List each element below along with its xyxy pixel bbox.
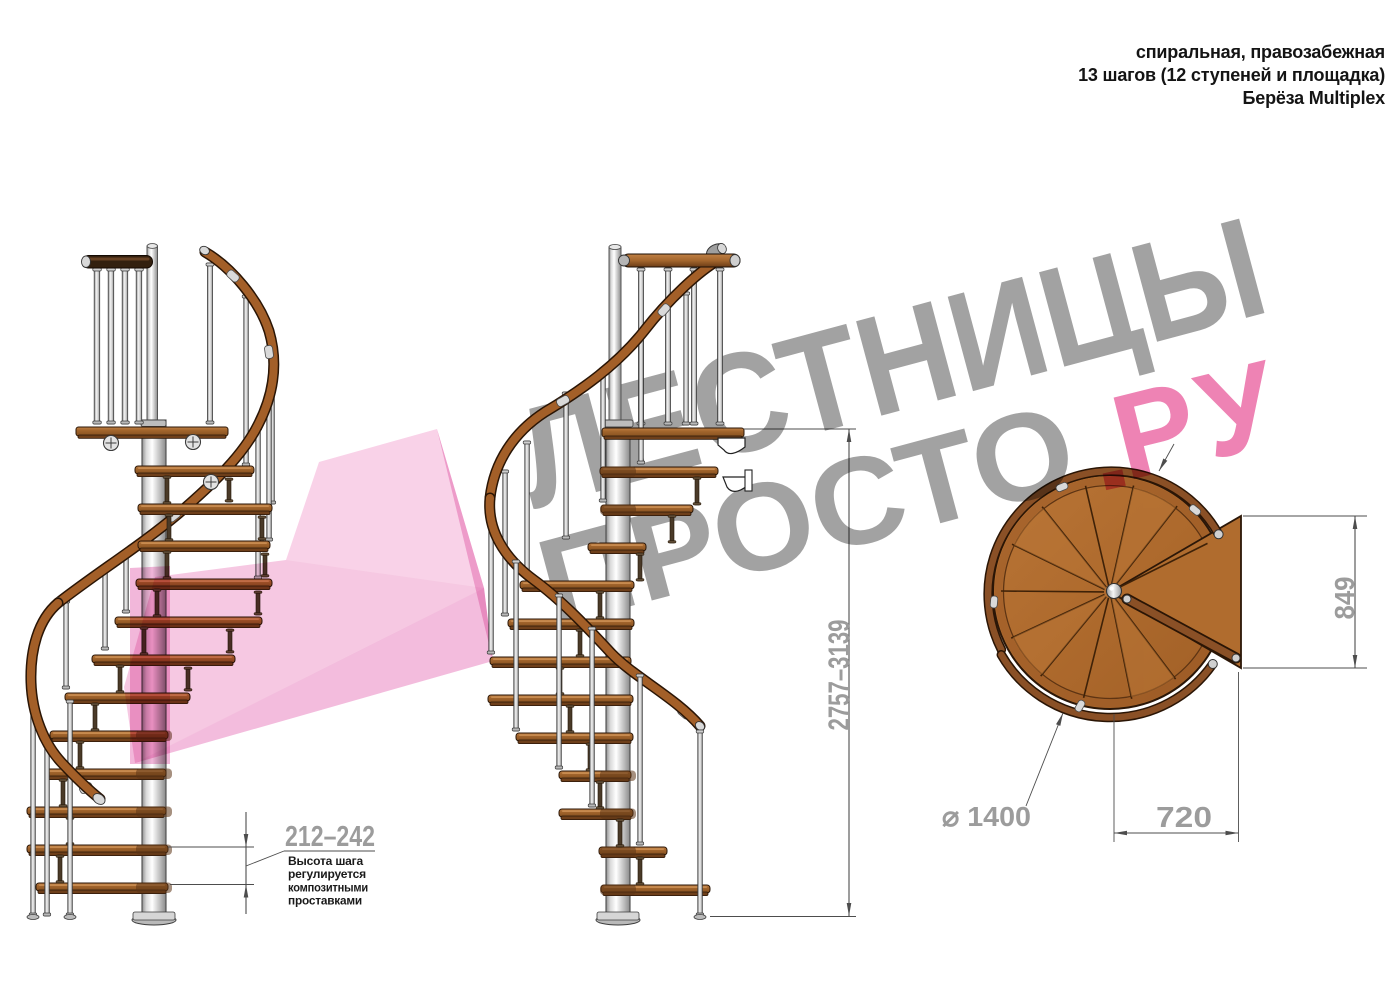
svg-text:2757–3139: 2757–3139 xyxy=(823,620,856,731)
svg-text:720: 720 xyxy=(1156,802,1212,834)
svg-text:спиральная, правозабежная13 ша: спиральная, правозабежная13 шагов (12 ст… xyxy=(1078,42,1385,108)
svg-text:849: 849 xyxy=(1329,577,1360,620)
svg-text:Высота шагарегулируетсякомпози: Высота шагарегулируетсякомпозитнымипрост… xyxy=(288,854,368,908)
svg-text:⌀ 1400: ⌀ 1400 xyxy=(942,801,1031,832)
svg-text:212–242: 212–242 xyxy=(285,821,375,853)
